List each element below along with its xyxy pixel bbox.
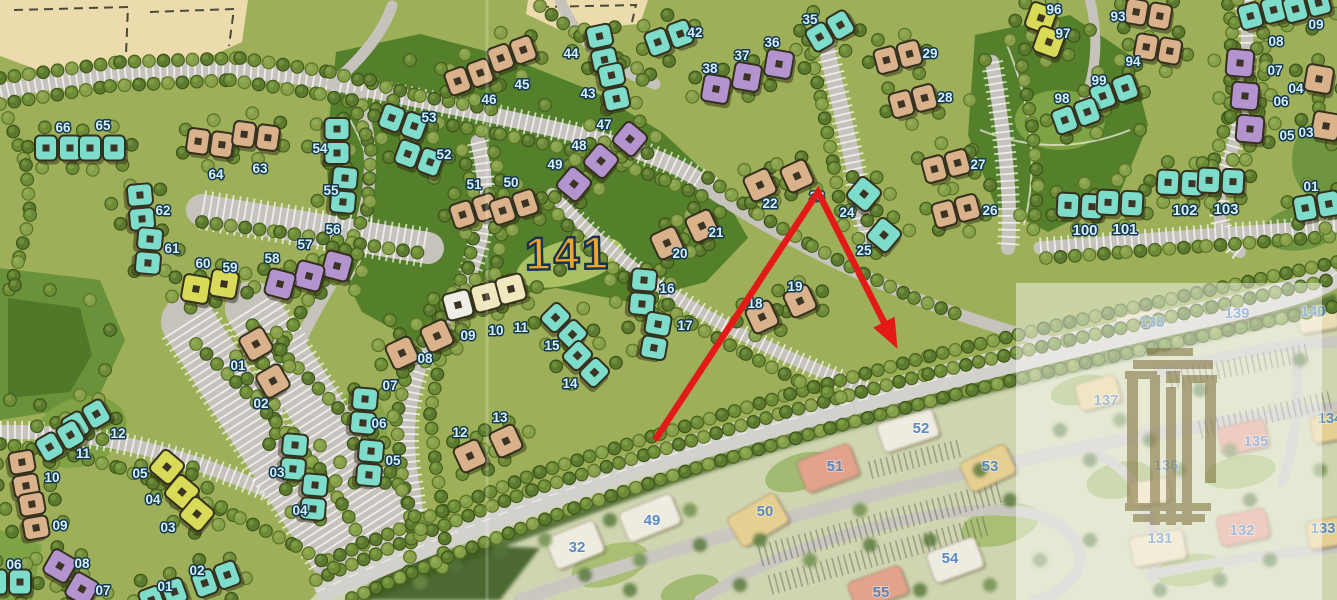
plot-label-46: 46 (481, 92, 497, 107)
plot-label-05: 05 (1279, 128, 1295, 143)
plot-label-50: 50 (757, 503, 774, 520)
plot-label-38: 38 (702, 61, 718, 76)
plot-label-45: 45 (514, 77, 530, 92)
plot-label-52: 52 (436, 147, 451, 162)
plot-label-25: 25 (856, 243, 872, 258)
plot-label-54: 54 (942, 550, 959, 567)
plot-label-64: 64 (208, 167, 224, 182)
plot-label-11: 11 (514, 320, 529, 335)
plot-label-97: 97 (1055, 26, 1070, 41)
plot-label-09: 09 (52, 518, 67, 533)
building-05 (1235, 114, 1267, 147)
plot-label-05: 05 (132, 466, 148, 481)
plot-label-16: 16 (659, 281, 675, 296)
plot-label-93: 93 (1110, 9, 1126, 24)
plot-label-28: 28 (937, 90, 953, 105)
plot-label-10: 10 (488, 323, 503, 338)
plot-label-02: 02 (253, 396, 268, 411)
building-65 (79, 136, 128, 165)
plot-label-08: 08 (417, 351, 433, 366)
plot-label-63: 63 (252, 161, 268, 176)
plot-label-57: 57 (297, 237, 312, 252)
plot-label-51: 51 (466, 177, 482, 192)
plot-label-55: 55 (323, 183, 339, 198)
plot-label-29: 29 (922, 46, 937, 61)
plot-label-08: 08 (1268, 34, 1284, 49)
plot-label-96: 96 (1046, 2, 1062, 17)
plot-label-07: 07 (1267, 63, 1282, 78)
plot-label-02: 02 (189, 563, 204, 578)
plot-label-12: 12 (110, 426, 125, 441)
plot-label-66: 66 (55, 120, 71, 135)
building-06 (0, 570, 34, 599)
plot-label-15: 15 (544, 338, 560, 353)
plot-label-01: 01 (230, 358, 246, 373)
plot-label-36: 36 (764, 35, 780, 50)
building-66 (35, 136, 84, 165)
plot-label-01: 01 (157, 579, 173, 594)
building-07 (1225, 48, 1257, 81)
plot-label-99: 99 (1091, 73, 1106, 88)
plot-label-07: 07 (382, 378, 397, 393)
plot-label-17: 17 (677, 318, 692, 333)
plot-label-65: 65 (95, 118, 111, 133)
plot-label-62: 62 (155, 203, 170, 218)
plot-label-21: 21 (708, 225, 724, 240)
plot-label-101: 101 (1112, 221, 1137, 238)
building-38 (700, 73, 734, 109)
plot-label-03: 03 (160, 520, 176, 535)
plot-label-98: 98 (1054, 91, 1070, 106)
building-36 (763, 48, 797, 84)
plot-label-06: 06 (1273, 94, 1289, 109)
plot-label-27: 27 (970, 157, 985, 172)
plot-label-14: 14 (562, 376, 578, 391)
plot-label-04: 04 (1288, 81, 1304, 96)
plot-label-55: 55 (873, 584, 890, 600)
plot-label-100: 100 (1072, 222, 1097, 239)
plot-label-03: 03 (1298, 125, 1314, 140)
building-06 (1230, 81, 1262, 114)
plot-label-24: 24 (839, 205, 855, 220)
plot-label-07: 07 (95, 583, 110, 598)
plot-label-47: 47 (596, 117, 611, 132)
plot-label-58: 58 (264, 251, 280, 266)
plot-label-50: 50 (503, 175, 518, 190)
plot-label-49: 49 (547, 157, 562, 172)
building-04 (1303, 63, 1337, 99)
plot-label-60: 60 (195, 256, 210, 271)
plot-label-56: 56 (325, 222, 341, 237)
plot-label-94: 94 (1125, 54, 1141, 69)
plot-label-06: 06 (371, 416, 387, 431)
plot-label-53: 53 (982, 458, 999, 475)
plot-label-09: 09 (1308, 17, 1323, 32)
plot-label-04: 04 (292, 503, 308, 518)
plot-label-42: 42 (687, 25, 702, 40)
plot-label-52: 52 (913, 420, 930, 437)
plot-label-35: 35 (802, 12, 818, 27)
plot-label-59: 59 (222, 260, 237, 275)
building-62 (123, 183, 156, 234)
plot-label-05: 05 (385, 453, 401, 468)
plot-label-10: 10 (44, 470, 59, 485)
plot-label-43: 43 (580, 86, 596, 101)
master-plan-map: 6665646362615455565758605953525150464544… (0, 0, 1337, 600)
plot-label-54: 54 (312, 141, 328, 156)
plot-label-61: 61 (164, 241, 180, 256)
plot-label-12: 12 (452, 425, 467, 440)
plot-label-103: 103 (1213, 201, 1238, 218)
plot-label-11: 11 (76, 446, 91, 461)
plot-label-09: 09 (460, 328, 475, 343)
plot-label-20: 20 (672, 246, 687, 261)
plot-label-51: 51 (827, 458, 844, 475)
plot-label-37: 37 (734, 48, 749, 63)
plot-label-48: 48 (571, 138, 587, 153)
plot-label-102: 102 (1172, 202, 1197, 219)
plot-label-53: 53 (421, 110, 437, 125)
plot-label-06: 06 (6, 557, 22, 572)
plot-label-26: 26 (982, 203, 998, 218)
plot-label-01: 01 (1303, 179, 1319, 194)
plot-label-22: 22 (762, 196, 777, 211)
plot-label-49: 49 (644, 512, 661, 529)
plot-label-32: 32 (569, 539, 586, 556)
site-plan-svg: 6665646362615455565758605953525150464544… (0, 0, 1337, 600)
building-37 (731, 61, 765, 97)
plot-label-44: 44 (563, 46, 579, 61)
plot-label-19: 19 (787, 279, 802, 294)
plot-label-04: 04 (145, 492, 161, 507)
district-number-label: 141 (525, 225, 612, 280)
plot-label-13: 13 (492, 410, 508, 425)
plot-label-08: 08 (74, 556, 90, 571)
plot-label-03: 03 (269, 465, 285, 480)
